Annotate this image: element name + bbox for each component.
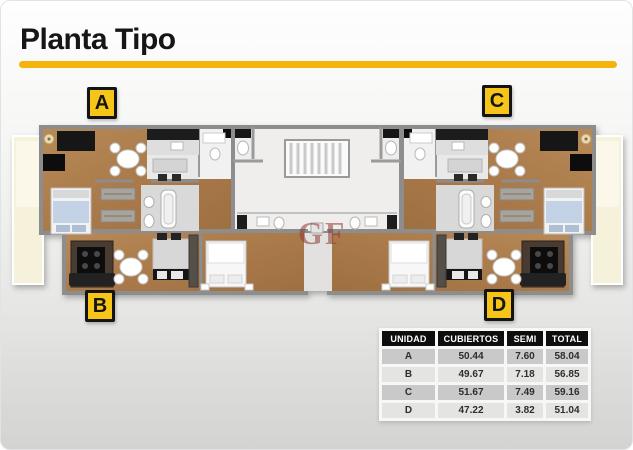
table-cell-d-unidad: D [382,403,435,418]
flyer-canvas: GF Planta Tipo A B C D UNIDAD CUBIERTOS … [0,0,633,450]
table-cell-d-total: 51.04 [546,403,588,418]
table-cell-d-semi: 3.82 [507,403,543,418]
table-cell-b-total: 56.85 [546,367,588,382]
table-cell-d-cubiertos: 47.22 [438,403,504,418]
table-cell-a-semi: 7.60 [507,349,543,364]
title-underline-rule [19,61,617,68]
table-cell-b-cubiertos: 49.67 [438,367,504,382]
table-cell-a-cubiertos: 50.44 [438,349,504,364]
unit-label-a: A [87,87,117,119]
table-cell-c-unidad: C [382,385,435,400]
page-title: Planta Tipo [20,23,176,57]
table-cell-b-semi: 7.18 [507,367,543,382]
watermark-text: GF [298,215,346,251]
table-cell-c-semi: 7.49 [507,385,543,400]
table-header-unidad: UNIDAD [382,331,435,346]
table-cell-b-unidad: B [382,367,435,382]
table-cell-a-total: 58.04 [546,349,588,364]
area-table: UNIDAD CUBIERTOS SEMI TOTAL A 50.44 7.60… [379,328,591,421]
table-cell-c-total: 59.16 [546,385,588,400]
table-cell-a-unidad: A [382,349,435,364]
table-cell-c-cubiertos: 51.67 [438,385,504,400]
unit-label-b: B [85,290,115,322]
unit-label-d: D [484,289,514,321]
table-header-total: TOTAL [546,331,588,346]
table-header-semi: SEMI [507,331,543,346]
table-header-cubiertos: CUBIERTOS [438,331,504,346]
unit-label-c: C [482,85,512,117]
